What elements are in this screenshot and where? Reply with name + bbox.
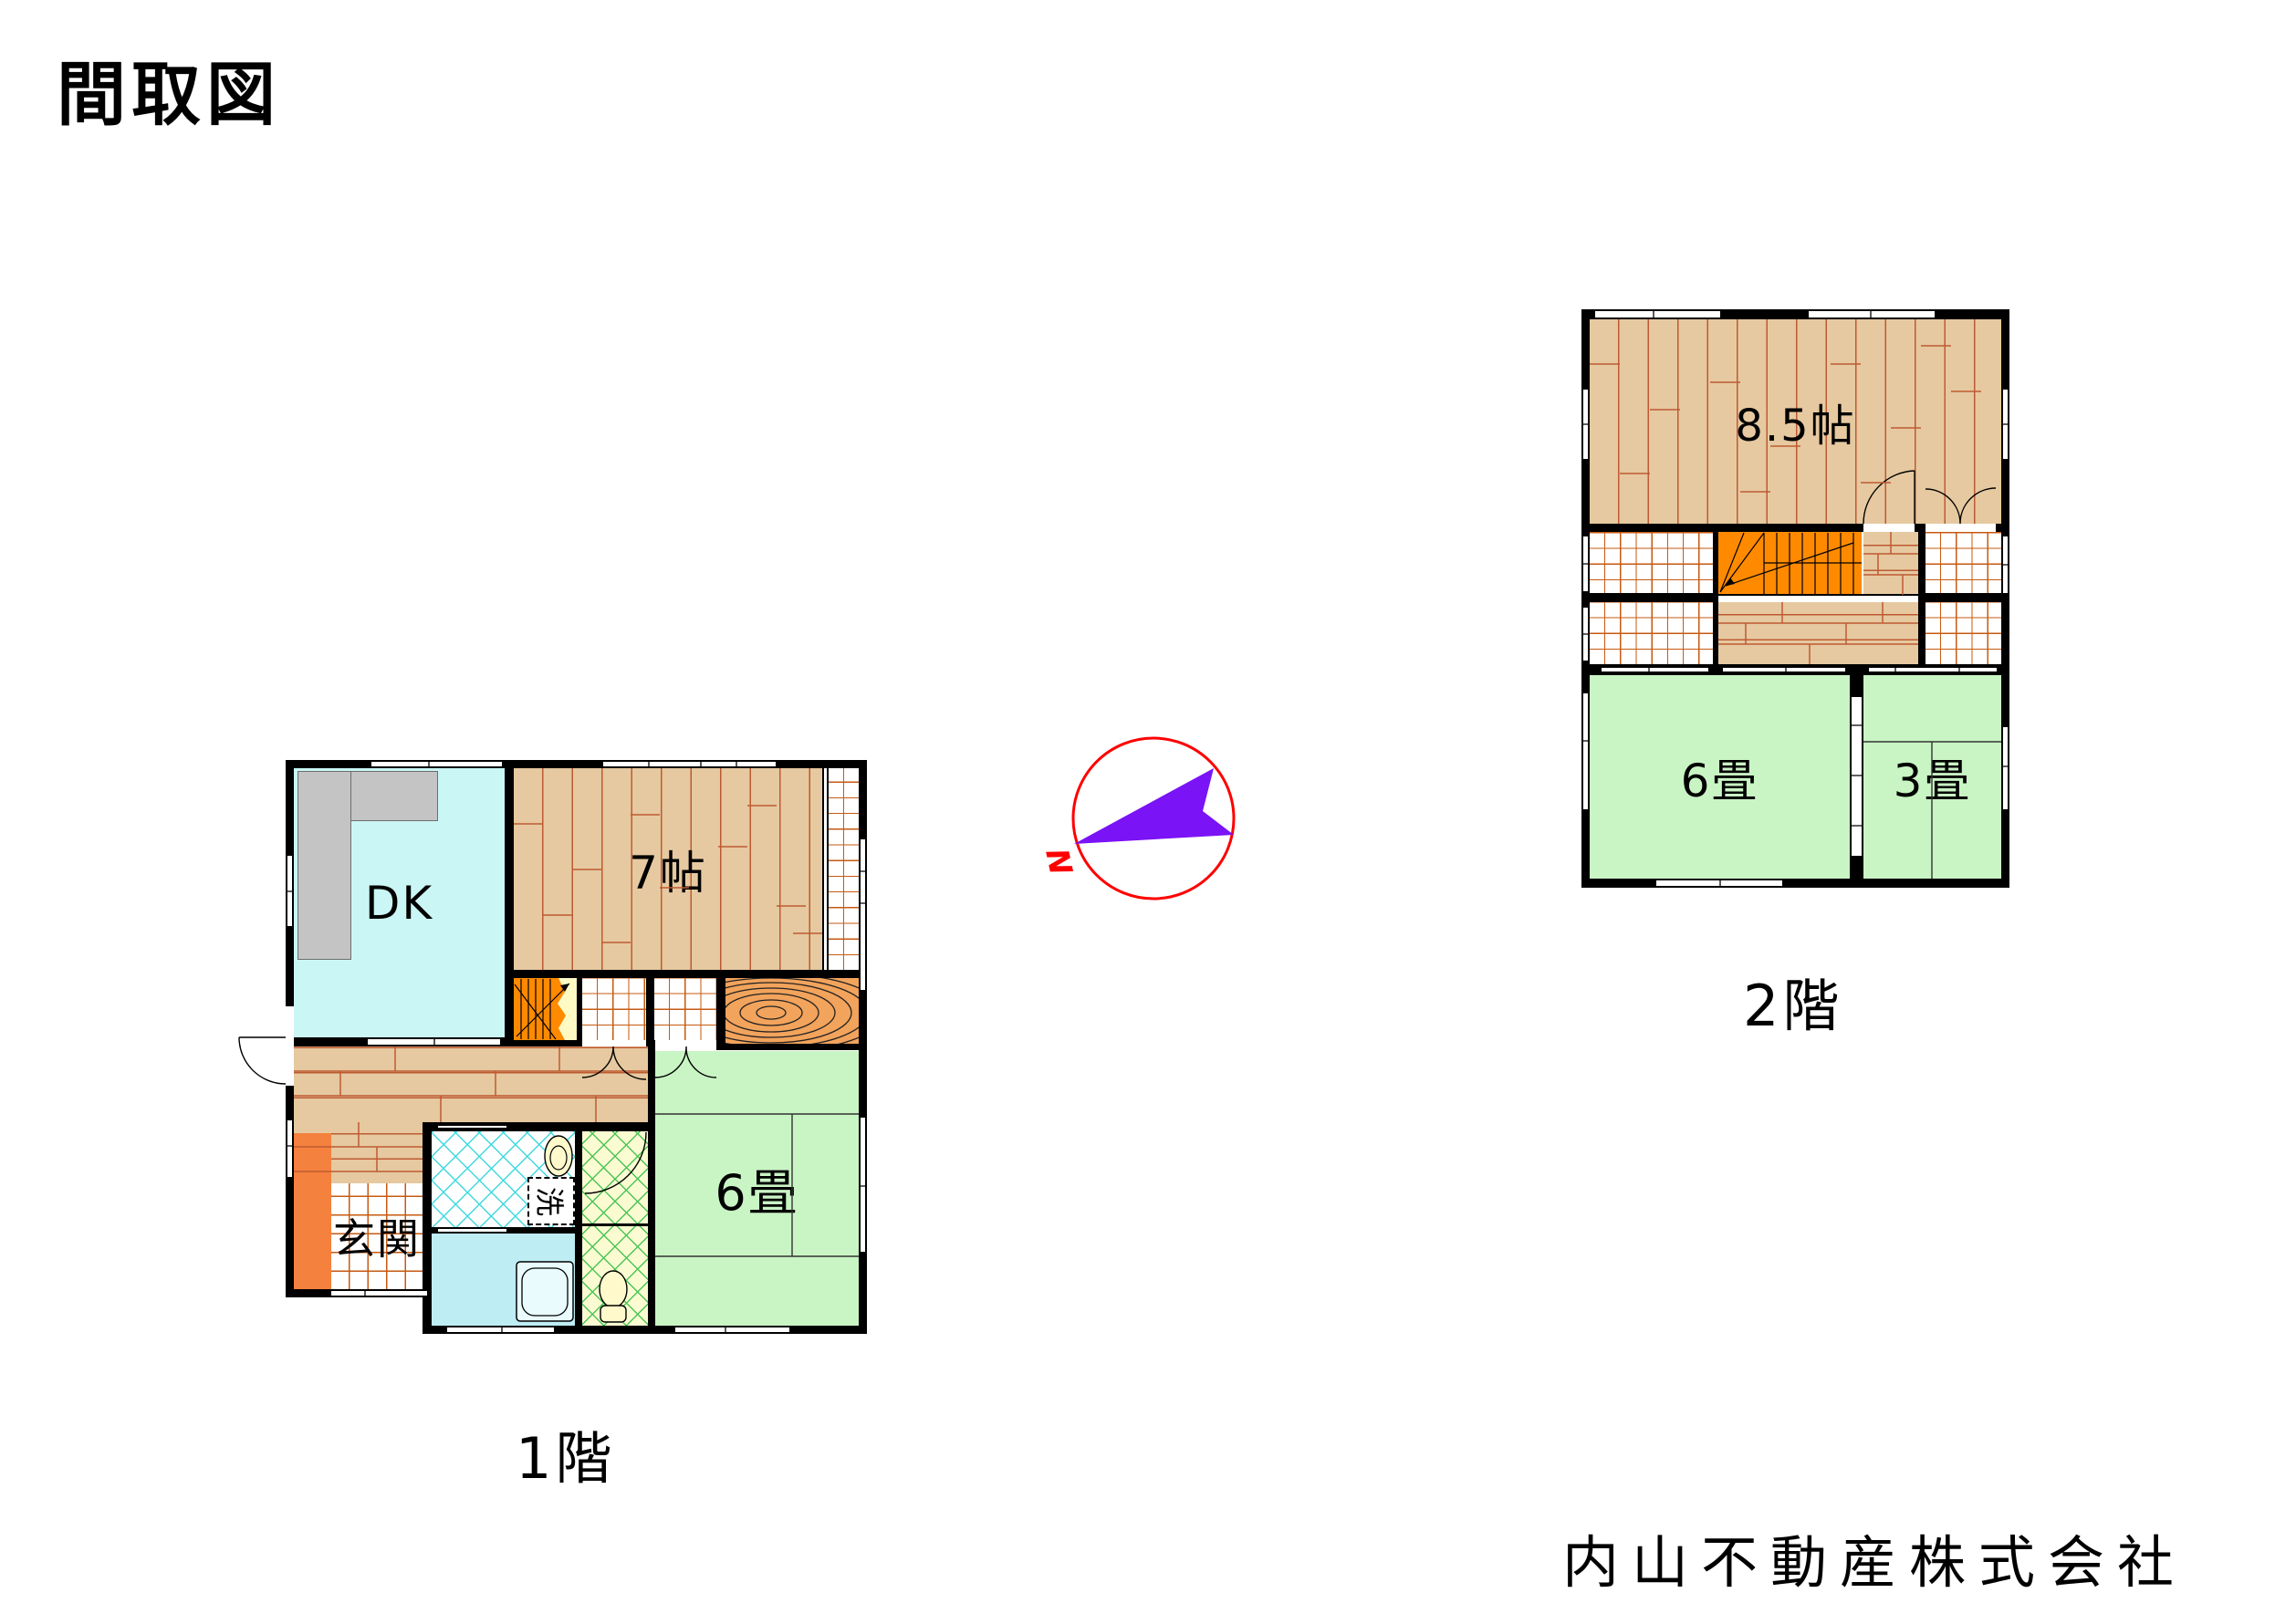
floor2-caption: 2階: [1743, 960, 1842, 1042]
company-name: 内山不動産株式会社: [1562, 1516, 2186, 1598]
floor1-plan: DK 7帖 玄関 洗 6畳: [286, 760, 867, 1334]
floor1-overlay: [286, 760, 867, 1334]
page-title: 間取図: [57, 38, 281, 139]
compass-north-label: N: [1038, 846, 1079, 879]
north-compass: N: [1059, 725, 1259, 926]
floorplan-page: 間取図 DK 7帖 玄関 洗 6畳: [0, 0, 2296, 1624]
floor2-overlay: [1581, 309, 2009, 888]
floor1-caption: 1階: [516, 1412, 615, 1494]
floor2-plan: 8.5帖 6畳 3畳: [1581, 309, 2009, 888]
north-arrow-icon: [1074, 768, 1234, 844]
